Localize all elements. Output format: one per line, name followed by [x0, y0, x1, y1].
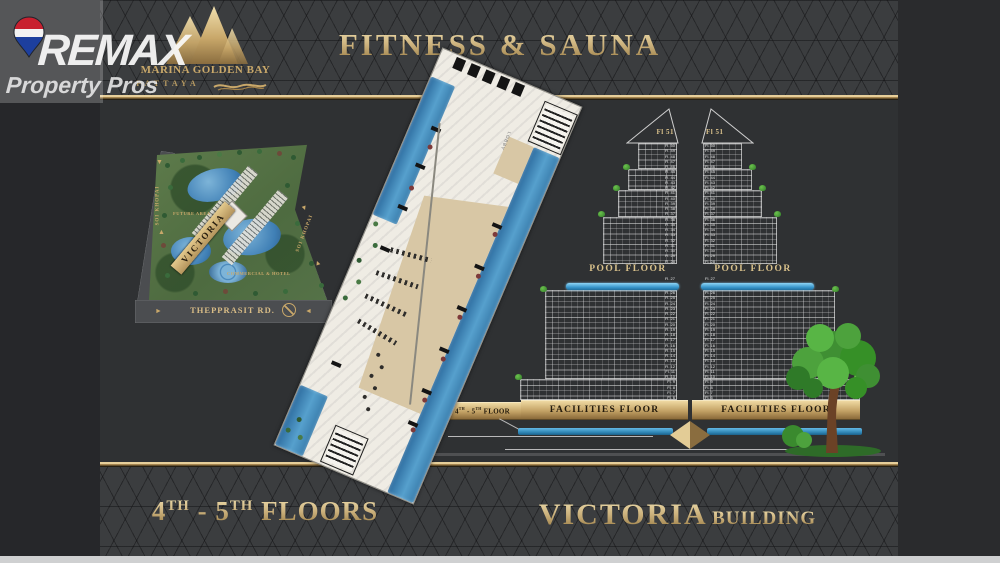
road-arrow-icon: ▲ [158, 229, 165, 236]
sauna-cabin [511, 82, 525, 97]
future-area-label: FUTURE AREA [173, 211, 211, 216]
road-arrow-icon: ▼ [313, 258, 322, 267]
site-plan: VICTORIA FUTURE AREA COMMERCIAL & HOTEL … [135, 143, 335, 328]
sauna-cabin [452, 57, 466, 72]
road-arrow-icon: ▼ [156, 159, 163, 166]
sauna-cabin [467, 63, 481, 78]
soi-khopai-left-label: SOI KHOPAI [156, 182, 161, 230]
sauna-cabin [496, 76, 510, 91]
slide-edge [0, 556, 1000, 563]
footer-floors-title: 4TH - 5TH FLOORS [115, 496, 415, 527]
site-trees [135, 143, 140, 148]
sauna-cabin [482, 69, 496, 84]
commercial-hotel-label: COMMERCIAL & HOTEL [227, 271, 291, 276]
footer-building-title: VICTORIA BUILDING [505, 498, 850, 532]
road-arrow-icon: ► [155, 308, 162, 315]
right-margin [898, 0, 1000, 563]
watermark-brand: REMAX [36, 26, 188, 76]
logo-wave-icon [212, 80, 268, 92]
road-arrow-icon: ▼ [300, 204, 309, 213]
thepprasit-road-label: THEPPRASIT RD. [175, 305, 290, 315]
locker-block [320, 425, 369, 476]
building-name: VICTORIA [539, 498, 708, 531]
slide-canvas: MARINA GOLDEN BAY PATTAYA FITNESS & SAUN… [0, 0, 1000, 563]
wall-stub [331, 360, 342, 367]
page-title: FITNESS & SAUNA [290, 27, 710, 63]
watermark-tagline: Property Pros [5, 72, 159, 99]
road-arrow-icon: ◄ [305, 308, 312, 315]
footer-gold-rule [100, 462, 898, 467]
planters [372, 221, 379, 228]
building-word: BUILDING [712, 508, 816, 529]
road-bottom: ► THEPPRASIT RD. ◄ [135, 300, 332, 323]
compass-icon [282, 303, 296, 317]
